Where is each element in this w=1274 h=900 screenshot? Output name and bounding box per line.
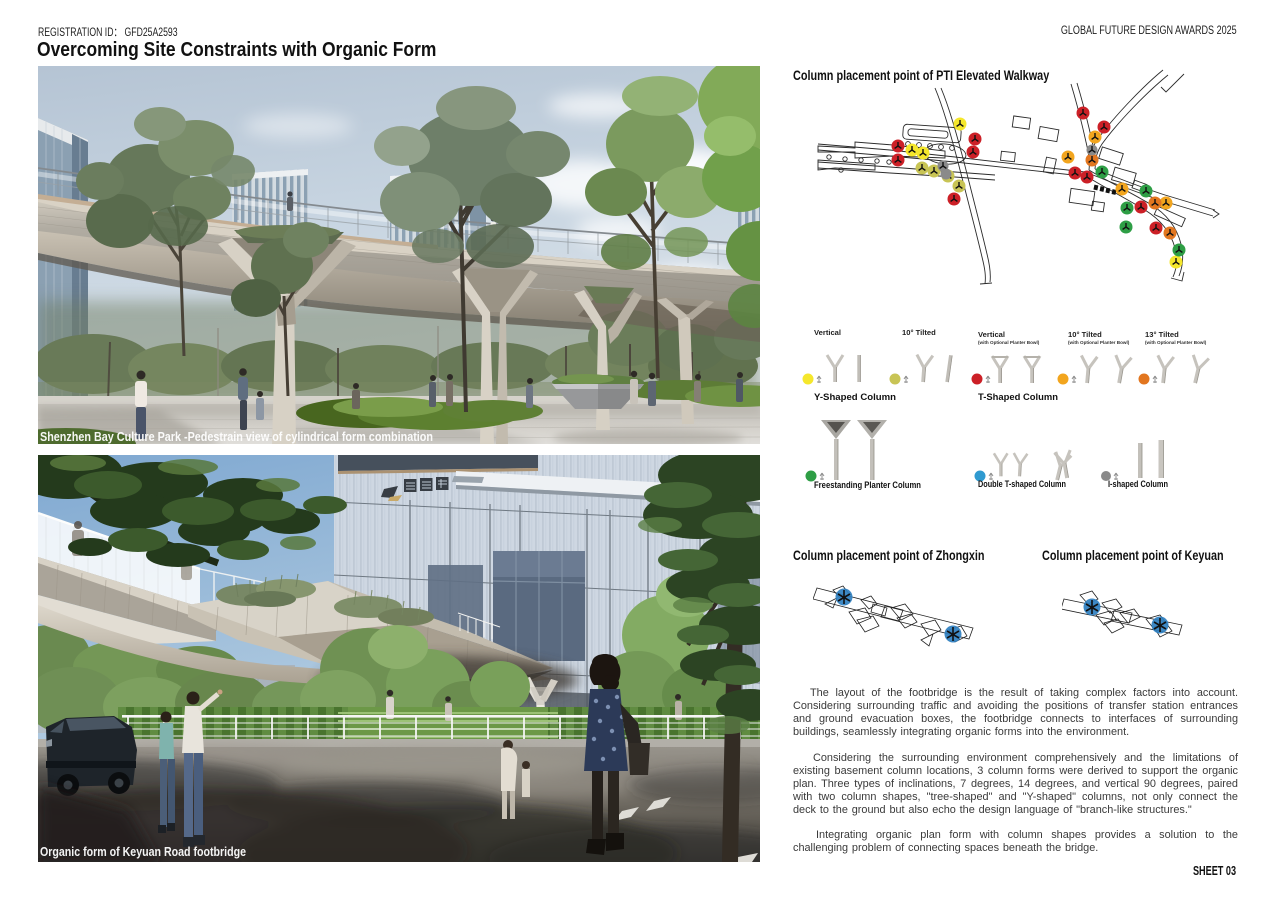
svg-text:(with Optional Planter Bowl): (with Optional Planter Bowl)	[1145, 340, 1207, 345]
svg-text:T-Shaped Column: T-Shaped Column	[978, 392, 1058, 403]
svg-text:Vertical: Vertical	[978, 330, 1005, 339]
svg-text:Double T-shaped Column: Double T-shaped Column	[978, 479, 1066, 490]
svg-text:Organic form of Keyuan Road fo: Organic form of Keyuan Road footbridge	[40, 844, 246, 859]
svg-text:Vertical: Vertical	[814, 328, 841, 337]
svg-text:Y-Shaped Column: Y-Shaped Column	[814, 392, 896, 403]
svg-text:10° Tilted: 10° Tilted	[902, 328, 936, 337]
svg-text:I-shaped Column: I-shaped Column	[1108, 479, 1168, 490]
svg-text:Freestanding Planter Column: Freestanding Planter Column	[814, 480, 921, 491]
svg-text:10° Tilted: 10° Tilted	[1068, 330, 1102, 339]
svg-text:13° Tilted: 13° Tilted	[1145, 330, 1179, 339]
svg-text:Shenzhen Bay Culture Park -Ped: Shenzhen Bay Culture Park -Pedestrain vi…	[40, 429, 433, 444]
svg-text:(with Optional Planter Bowl): (with Optional Planter Bowl)	[1068, 340, 1130, 345]
svg-text:(with Optional Planter Bowl): (with Optional Planter Bowl)	[978, 340, 1040, 345]
